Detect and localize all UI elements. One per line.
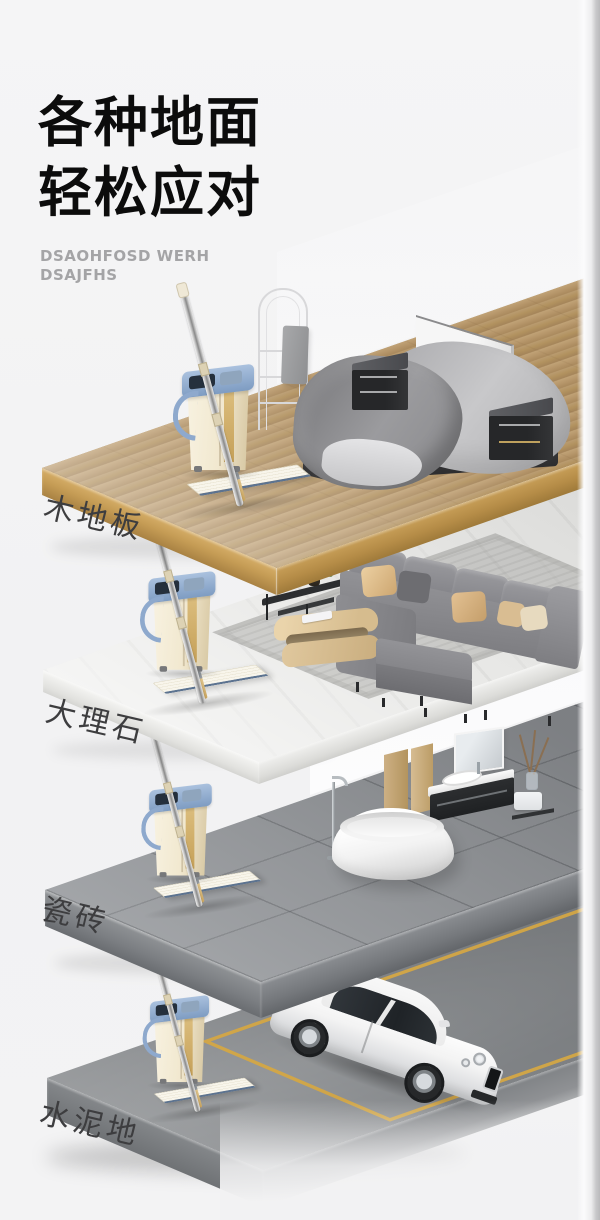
page-title-line2: 轻松应对 [38, 158, 262, 228]
right-wall-edge [577, 0, 600, 1220]
product-poster: 各种地面 轻松应对 DSAOHFOSD WERH DSAJFHS [0, 0, 600, 1220]
nightstand-right [489, 404, 553, 464]
nightstand-left [352, 358, 408, 412]
subtitle-line2: DSAJFHS [40, 266, 118, 285]
mop-and-bucket-set-1 [160, 282, 330, 532]
bucket-handle [171, 389, 198, 441]
page-title-line1: 各种地面 [38, 88, 262, 158]
subtitle-line1: DSAOHFOSD WERH [40, 247, 210, 266]
